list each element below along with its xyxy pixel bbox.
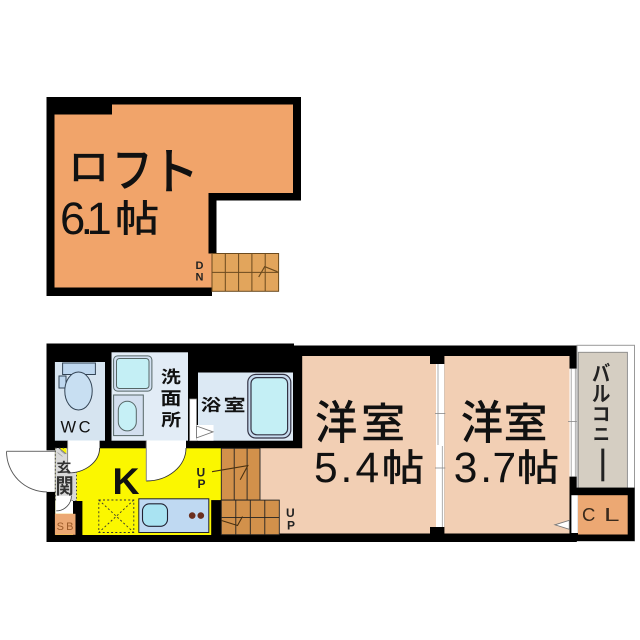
svg-text:SB: SB [57,521,76,533]
svg-text:WC: WC [61,419,94,437]
svg-text:D: D [196,260,204,272]
svg-text:3.7: 3.7 [454,445,516,492]
svg-text:6.1: 6.1 [60,193,112,244]
svg-text:P: P [287,518,295,532]
svg-text:5.4: 5.4 [314,445,379,492]
svg-text:P: P [198,477,206,491]
svg-text:N: N [196,272,204,284]
svg-text:K: K [113,461,140,502]
